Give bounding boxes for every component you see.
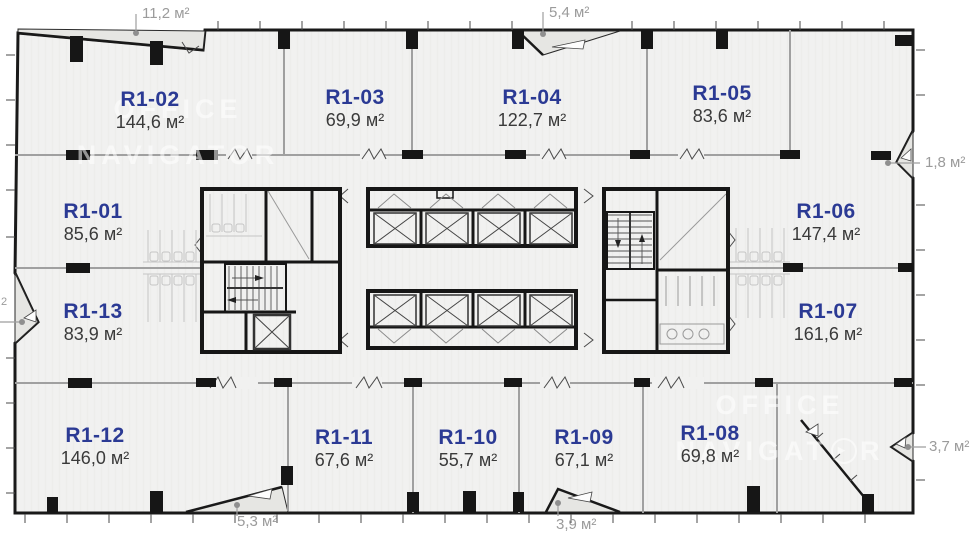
room-area: 161,6 м² <box>794 324 862 344</box>
dim-3-9: 3,9 м² <box>556 516 596 533</box>
room-label-r1-04[interactable]: R1-04 122,7 м² <box>498 86 566 130</box>
room-label-r1-13[interactable]: R1-13 83,9 м² <box>63 300 122 344</box>
room-area: 69,8 м² <box>680 446 739 466</box>
room-label-r1-06[interactable]: R1-06 147,4 м² <box>792 200 860 244</box>
dim-1-8: 1,8 м² <box>925 154 965 171</box>
room-code: R1-11 <box>315 426 373 450</box>
room-label-r1-01[interactable]: R1-01 85,6 м² <box>63 200 122 244</box>
room-area: 55,7 м² <box>438 450 497 470</box>
room-code: R1-02 <box>116 88 184 112</box>
dim-5-4: 5,4 м² <box>549 4 589 21</box>
room-area: 146,0 м² <box>61 448 129 468</box>
room-area: 122,7 м² <box>498 110 566 130</box>
room-area: 69,9 м² <box>325 110 384 130</box>
room-area: 83,9 м² <box>63 324 122 344</box>
floor-plan: OFFICE NAVIGATOR OFFICE NAVIGATR R1-02 1… <box>0 0 975 540</box>
room-label-r1-05[interactable]: R1-05 83,6 м² <box>692 82 751 126</box>
room-code: R1-12 <box>61 424 129 448</box>
room-label-r1-08[interactable]: R1-08 69,8 м² <box>680 422 739 466</box>
room-area: 144,6 м² <box>116 112 184 132</box>
room-label-r1-02[interactable]: R1-02 144,6 м² <box>116 88 184 132</box>
room-label-r1-12[interactable]: R1-12 146,0 м² <box>61 424 129 468</box>
room-code: R1-10 <box>438 426 497 450</box>
room-code: R1-06 <box>792 200 860 224</box>
room-code: R1-07 <box>794 300 862 324</box>
room-label-r1-11[interactable]: R1-11 67,6 м² <box>315 426 373 470</box>
room-code: R1-13 <box>63 300 122 324</box>
room-area: 147,4 м² <box>792 224 860 244</box>
dim-left-partial: 2 <box>1 296 7 308</box>
dim-5-3: 5,3 м² <box>237 513 277 530</box>
room-area: 83,6 м² <box>692 106 751 126</box>
room-code: R1-04 <box>498 86 566 110</box>
room-label-r1-09[interactable]: R1-09 67,1 м² <box>554 426 613 470</box>
room-area: 85,6 м² <box>63 224 122 244</box>
room-label-r1-03[interactable]: R1-03 69,9 м² <box>325 86 384 130</box>
room-code: R1-03 <box>325 86 384 110</box>
room-code: R1-08 <box>680 422 739 446</box>
room-label-r1-10[interactable]: R1-10 55,7 м² <box>438 426 497 470</box>
room-area: 67,1 м² <box>554 450 613 470</box>
room-code: R1-09 <box>554 426 613 450</box>
room-area: 67,6 м² <box>315 450 373 470</box>
room-code: R1-01 <box>63 200 122 224</box>
dim-3-7: 3,7 м² <box>929 438 969 455</box>
room-code: R1-05 <box>692 82 751 106</box>
dim-11-2: 11,2 м² <box>142 5 190 22</box>
room-label-r1-07[interactable]: R1-07 161,6 м² <box>794 300 862 344</box>
